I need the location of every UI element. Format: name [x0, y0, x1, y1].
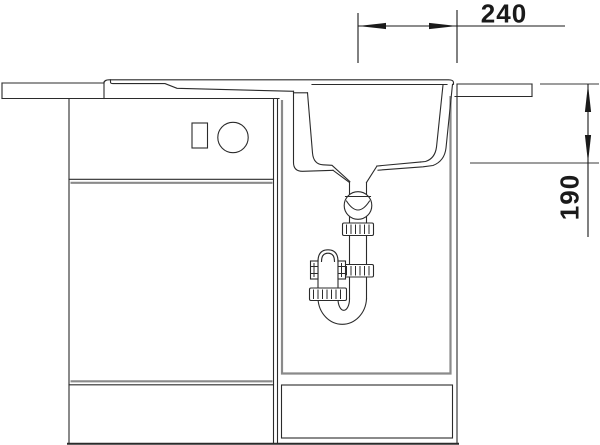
control-knob — [218, 122, 248, 152]
base-cabinet-left — [69, 99, 274, 444]
dim-240-arrow-right — [429, 23, 457, 29]
dim-190-arrow-up — [585, 85, 591, 113]
standpipe-dome-cap — [318, 250, 338, 262]
drain-assembly — [310, 166, 378, 324]
dim-240-label: 240 — [481, 0, 527, 29]
bowl-right-wall-inner — [421, 85, 444, 162]
drain-funnel-left — [333, 170, 350, 182]
bowl-left-wall-inner — [308, 93, 350, 182]
drainboard-surface — [111, 80, 294, 92]
sink-installation-diagram: 240 190 — [0, 0, 600, 445]
dimension-190: 190 — [470, 84, 599, 237]
right-cabinet-drawer-panel — [282, 385, 453, 438]
bowl-left-wall-outer — [294, 91, 334, 171]
p-trap-outer — [318, 299, 367, 324]
countertop-right — [455, 84, 532, 97]
dim-240-arrow-left — [358, 23, 386, 29]
dim-190-label: 190 — [555, 174, 585, 220]
technical-drawing-canvas: 240 190 — [0, 0, 600, 445]
bowl-floor-right-inner — [377, 162, 421, 166]
sink-unit — [104, 80, 454, 182]
dim-190-arrow-down — [585, 135, 591, 163]
ball-joint — [344, 192, 372, 220]
base-cabinet-right — [278, 84, 458, 444]
control-rectangle — [192, 123, 208, 148]
dimension-240: 240 — [358, 0, 565, 63]
drain-funnel-right — [367, 166, 378, 183]
